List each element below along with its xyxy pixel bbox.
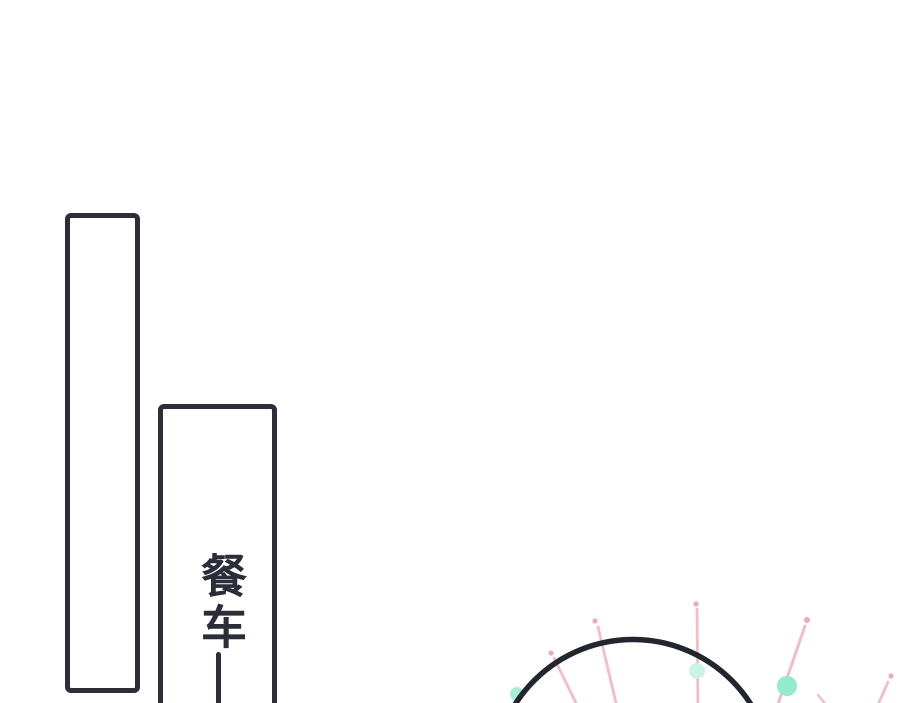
sparkle-tip-dot xyxy=(804,617,810,623)
sparkle-ray xyxy=(877,682,888,703)
sparkle-tip-dot xyxy=(548,650,553,655)
sparkle-tip-dot xyxy=(888,673,893,678)
sparkle-rays xyxy=(554,609,888,703)
mint-dot xyxy=(689,663,705,679)
sparkle-tip-dot xyxy=(592,618,597,623)
mint-dots xyxy=(510,663,797,701)
sparkle-tip-dot xyxy=(693,601,698,606)
sparkle-decoration-layer xyxy=(0,0,900,703)
sparkle-ray xyxy=(818,695,828,703)
head-circle-arc xyxy=(494,640,773,703)
comic-panel: 餐车 xyxy=(0,0,900,703)
mint-dot xyxy=(777,676,797,696)
